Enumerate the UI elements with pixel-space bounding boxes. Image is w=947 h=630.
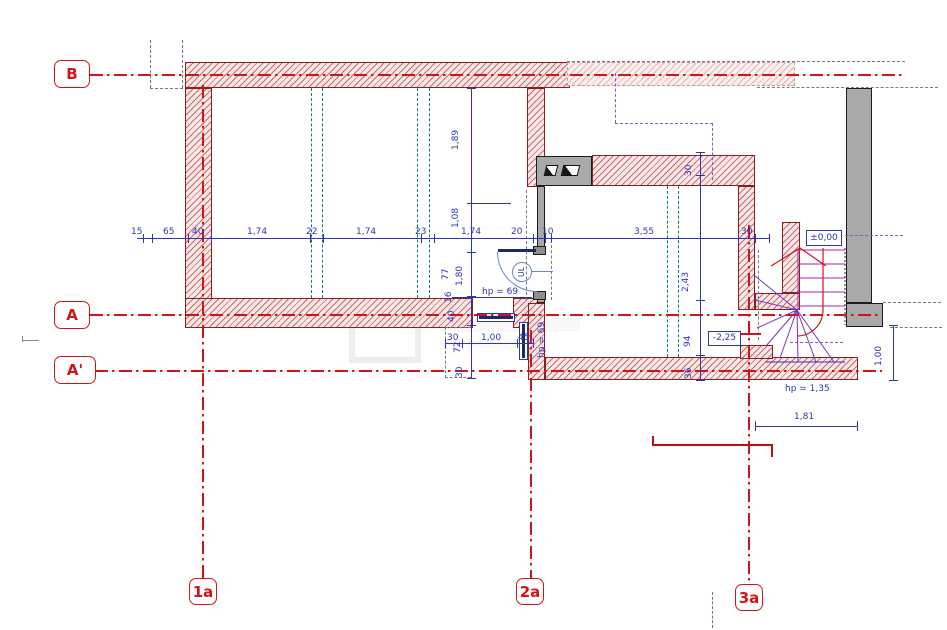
dim-label: 1,74 [461, 228, 481, 237]
dim-ref-line-hp [452, 297, 532, 298]
dim-label: 10 [542, 228, 553, 237]
dim-tick [696, 152, 705, 153]
section-bracket-tick-left [652, 436, 654, 445]
dim-tick [769, 234, 770, 243]
dim-label: 40 [192, 228, 203, 237]
dim-tick [445, 339, 446, 348]
dim-tick [755, 421, 756, 431]
floor-plan-canvas: UL [0, 0, 947, 630]
level-basement-label: -2,25 [713, 334, 736, 343]
door-jamb-bottom [533, 291, 546, 300]
wall-top-right-room [592, 155, 755, 186]
grid-marker-2a: 2a [516, 578, 544, 605]
grid-marker-1a-label: 1a [193, 583, 214, 601]
beam-dashed-3a [667, 186, 668, 357]
grid-line-A2 [95, 370, 882, 372]
dim-tick [467, 88, 476, 89]
dashed-partition-cont [526, 190, 527, 300]
dim-label: 45 [518, 334, 529, 343]
dim-line-181 [755, 426, 858, 427]
dim-tick [696, 380, 705, 381]
dim-label: 3,55 [634, 228, 654, 237]
dim-label: 40 [448, 311, 457, 322]
corner-mark-left-h [22, 340, 39, 341]
dim-label: 23 [415, 228, 426, 237]
dim-label: 1,89 [452, 130, 461, 150]
dim-label: 30 [456, 367, 465, 378]
dim-tick [696, 175, 705, 176]
dim-tick [467, 325, 476, 326]
dim-label: 20 [511, 228, 522, 237]
dim-tick [211, 234, 212, 243]
dim-tick [467, 378, 476, 379]
dim-tick [434, 234, 435, 243]
dim-tick [533, 339, 534, 348]
dim-line-main-row [137, 238, 769, 239]
lamp-symbol-lead [532, 271, 553, 272]
parapet-label-side: hp = 69 [538, 322, 547, 358]
staircase [738, 240, 858, 370]
parapet-label-door: hp = 69 [482, 288, 518, 297]
dim-label-181: 1,81 [794, 413, 814, 422]
corner-mark-left-v [22, 336, 23, 342]
vent-slot-2 [561, 165, 581, 176]
dim-label: 65 [163, 228, 174, 237]
dim-label: 15 [131, 228, 142, 237]
lamp-symbol-label: UL [518, 267, 526, 277]
grid-marker-B: B [54, 60, 90, 88]
dim-label: 72 [454, 342, 463, 353]
grid-marker-1a: 1a [189, 578, 217, 605]
dim-line-100 [893, 325, 894, 380]
dim-tick [533, 234, 534, 243]
dim-ref-line-203 [471, 203, 511, 204]
dashed-topleft-v2 [182, 40, 183, 88]
dim-label: 1,00 [481, 334, 501, 343]
grid-marker-A2: A' [54, 356, 96, 384]
grid-line-3a [748, 225, 750, 583]
dim-tick [143, 234, 144, 243]
section-bracket-line [652, 444, 773, 446]
grid-line-A [90, 314, 882, 316]
dashed-right-upper [883, 302, 941, 303]
dim-tick [889, 380, 898, 381]
beam-dashed-1b [322, 88, 323, 298]
purple-dashed-h2 [845, 235, 903, 236]
dim-label: 22 [306, 228, 317, 237]
window-bottom-glazing [479, 316, 513, 319]
grid-marker-B-label: B [66, 65, 77, 83]
dim-label: 16 [445, 292, 454, 303]
level-basement: -2,25 [708, 331, 741, 346]
dim-label-100: 1,00 [875, 346, 884, 366]
purple-dashed-v3 [712, 592, 713, 628]
dim-label: 2,43 [682, 272, 691, 292]
parapet-label-stair: hp = 1,35 [785, 385, 830, 394]
dim-tick [696, 355, 705, 356]
lamp-symbol-circle: UL [512, 262, 532, 282]
dim-tick [467, 252, 476, 253]
dim-label: 1,08 [452, 208, 461, 228]
dim-line-right-col [700, 152, 701, 380]
dashed-top-lower [757, 87, 938, 88]
purple-dashed-v1 [615, 73, 616, 123]
grid-marker-A-label: A [66, 306, 78, 324]
grid-marker-A2-label: A' [67, 361, 83, 379]
beam-dashed-2b [429, 88, 430, 298]
dim-tick [696, 300, 705, 301]
dashed-topleft-v1 [150, 40, 151, 88]
beam-dashed-3b [678, 186, 679, 357]
grid-marker-A: A [54, 301, 90, 329]
grid-marker-2a-label: 2a [520, 583, 541, 601]
dim-label: 1,74 [356, 228, 376, 237]
dashed-topleft-h [150, 88, 183, 89]
purple-dashed-v2 [712, 123, 713, 180]
dim-label: 77 [442, 269, 451, 280]
grid-line-B [90, 74, 905, 76]
section-bracket-tick-right [771, 444, 773, 457]
purple-dashed-h1 [615, 123, 713, 124]
beam-dashed-1a [311, 88, 312, 298]
level-ground: ±0,00 [806, 230, 842, 246]
grid-line-1a [202, 85, 204, 578]
dashed-hall-v [551, 240, 552, 300]
grid-marker-3a: 3a [735, 584, 763, 611]
dashed-right-lower [890, 327, 942, 328]
level-ground-label: ±0,00 [810, 234, 838, 243]
beam-dashed-2a [417, 88, 418, 298]
dim-label: 30 [741, 228, 752, 237]
dim-label: 36 [685, 368, 694, 379]
wall-bottom-left-building [185, 298, 473, 328]
dashed-top-upper [567, 61, 905, 62]
dim-tick [188, 234, 189, 243]
dim-tick [755, 234, 756, 243]
grid-marker-3a-label: 3a [739, 589, 760, 607]
dim-tick [152, 234, 153, 243]
dim-label: 1,80 [456, 266, 465, 286]
dim-tick [323, 234, 324, 243]
dim-label: 30 [685, 165, 694, 176]
dim-tick [857, 421, 858, 431]
dim-tick [889, 325, 898, 326]
dim-tick [738, 234, 739, 243]
wall-left [185, 88, 212, 328]
dim-label: 1,74 [247, 228, 267, 237]
grid-line-2a [530, 330, 532, 578]
dim-label: 94 [684, 336, 693, 347]
